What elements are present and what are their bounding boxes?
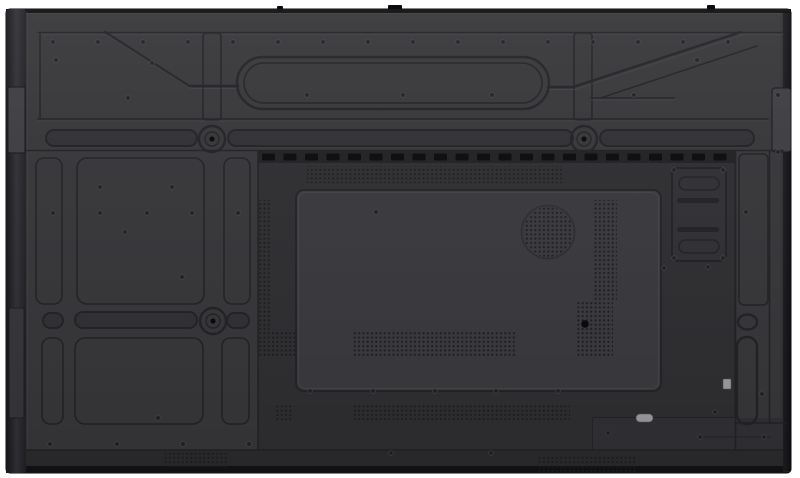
product-photo: Rear view of a large flat-panel display:… (0, 0, 800, 478)
lighting-sheen (6, 9, 791, 473)
display-device (6, 5, 791, 473)
display-rear-illustration: Rear view of a large flat-panel display:… (0, 0, 800, 478)
